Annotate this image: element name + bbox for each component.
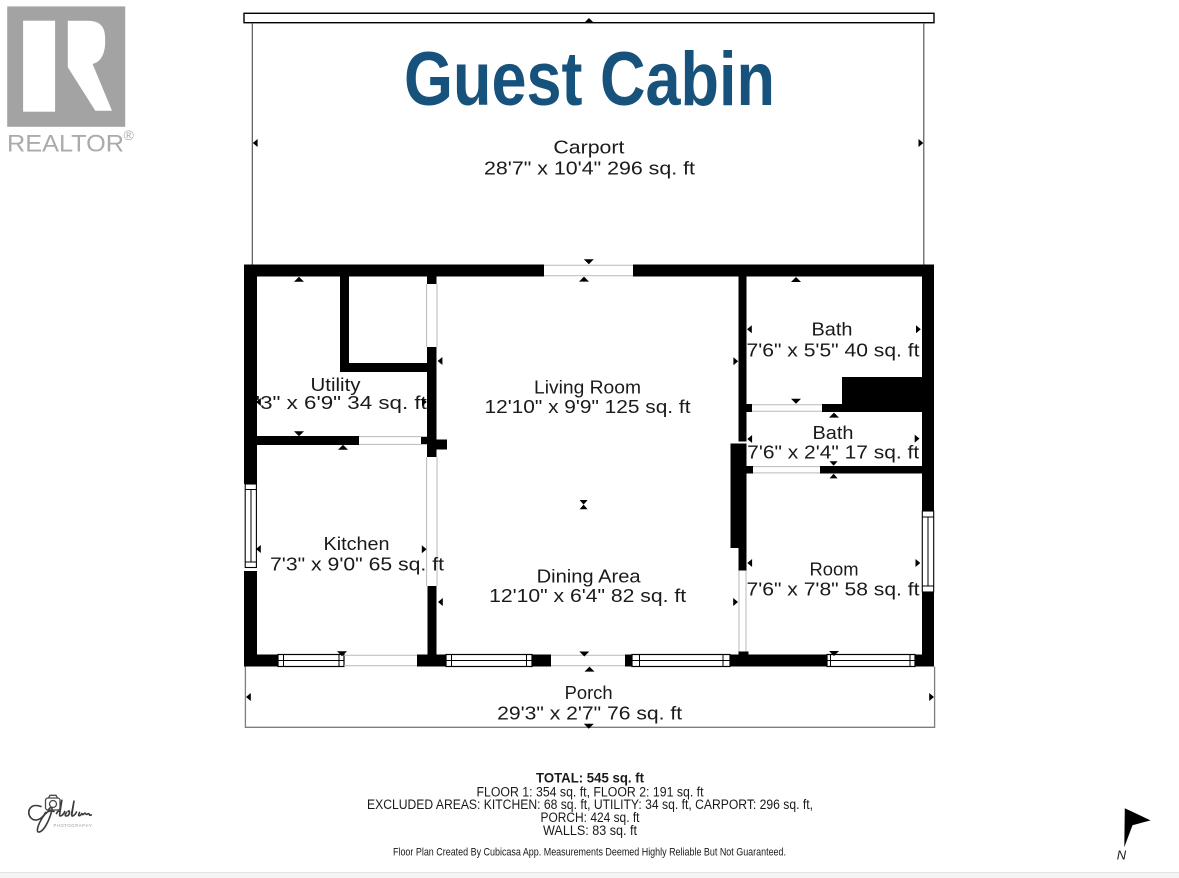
svg-text:WALLS: 83 sq. ft: WALLS: 83 sq. ft: [543, 823, 637, 838]
svg-text:12'10" x 6'4" 82 sq. ft: 12'10" x 6'4" 82 sq. ft: [489, 586, 686, 606]
svg-text:Bath: Bath: [812, 320, 853, 340]
svg-text:'3" x 6'9" 34 sq. ft: '3" x 6'9" 34 sq. ft: [256, 393, 427, 413]
svg-text:Guest Cabin: Guest Cabin: [404, 37, 775, 122]
svg-text:7'6" x 2'4" 17 sq. ft: 7'6" x 2'4" 17 sq. ft: [747, 443, 919, 463]
svg-text:7'6" x 7'8" 58 sq. ft: 7'6" x 7'8" 58 sq. ft: [747, 580, 920, 600]
svg-text:TOTAL: 545 sq. ft: TOTAL: 545 sq. ft: [536, 770, 644, 786]
svg-text:REALTOR: REALTOR: [7, 131, 124, 158]
svg-text:®: ®: [124, 127, 135, 143]
svg-text:28'7" x 10'4" 296 sq. ft: 28'7" x 10'4" 296 sq. ft: [484, 159, 695, 179]
svg-text:29'3" x 2'7" 76 sq. ft: 29'3" x 2'7" 76 sq. ft: [497, 704, 682, 724]
svg-text:Porch: Porch: [565, 683, 613, 703]
svg-text:PHOTOGRAPHY: PHOTOGRAPHY: [53, 823, 92, 828]
svg-text:Kitchen: Kitchen: [324, 534, 390, 554]
svg-text:Dining Area: Dining Area: [537, 567, 642, 587]
svg-text:N: N: [1117, 848, 1127, 863]
svg-text:Bath: Bath: [813, 423, 854, 443]
svg-text:Floor Plan Created By Cubicasa: Floor Plan Created By Cubicasa App. Meas…: [393, 847, 786, 859]
svg-text:7'6" x 5'5" 40 sq. ft: 7'6" x 5'5" 40 sq. ft: [747, 341, 920, 361]
svg-text:Utility: Utility: [311, 375, 361, 395]
svg-text:Room: Room: [810, 559, 859, 579]
svg-text:12'10" x 9'9" 125 sq. ft: 12'10" x 9'9" 125 sq. ft: [485, 397, 691, 417]
svg-text:7'3" x 9'0" 65 sq. ft: 7'3" x 9'0" 65 sq. ft: [270, 555, 444, 575]
svg-text:Living Room: Living Room: [534, 377, 641, 397]
svg-text:Carport: Carport: [553, 138, 624, 158]
